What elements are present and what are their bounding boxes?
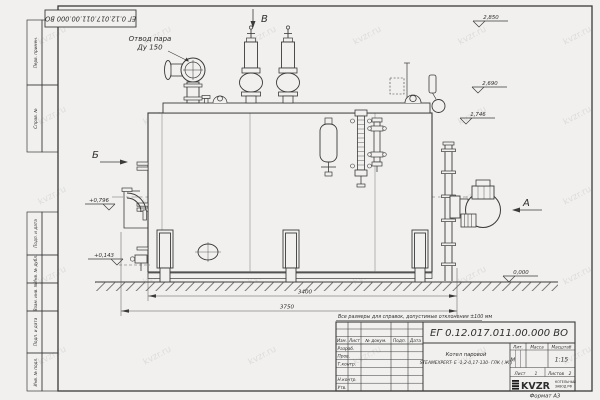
watermark-text: kvzr.ru <box>37 105 69 128</box>
siphon-loop <box>432 100 445 113</box>
steam-outlet-label-line1: Отвод пара <box>129 35 172 43</box>
dashed-reference-box <box>390 78 404 94</box>
margin-label-sprav-no: Справ. № <box>33 108 38 129</box>
row-tkontr: Т.контр. <box>338 362 357 368</box>
view-label-b: Б <box>92 150 99 161</box>
left-piping <box>122 162 148 271</box>
sheet-label: Лист <box>514 371 526 377</box>
col-izm: Изм. <box>337 338 347 344</box>
drum-fittings <box>202 96 227 104</box>
col-list: Лист <box>348 338 360 344</box>
dim-3750: 3750 <box>280 305 295 311</box>
top-rotated-stamp: ЕГ 0.12.017.011.00.000 ВО <box>45 10 136 27</box>
margin-label-podp-data-2: Подп. и дата <box>33 317 38 346</box>
burner-motor <box>472 186 494 199</box>
dimension-values: 3400 3750 <box>280 290 313 311</box>
steam-outlet-label-line2: Ду 150 <box>136 44 163 52</box>
elevation-0000: 0,000 <box>513 270 529 276</box>
watermark-text: kvzr.ru <box>37 345 69 368</box>
mass-label: Масса <box>530 344 544 349</box>
watermark-text: kvzr.ru <box>142 345 174 368</box>
row-nkontr: Н.контр. <box>338 377 357 383</box>
title-block-text: ЕГ 0.12.017.011.00.000 ВО Изм. Лист № до… <box>337 328 577 400</box>
left-margin-labels: Перв. примен. Справ. № Подп. и дата Инв.… <box>33 37 38 387</box>
watermark-text: kvzr.ru <box>37 25 69 48</box>
boiler-general-view-drawing: kvzr.rukvzr.rukvzr.rukvzr.rukvzr.rukvzr.… <box>0 0 600 400</box>
steam-outlet-callout: Отвод пара Ду 150 <box>129 35 189 62</box>
watermark-text: kvzr.ru <box>457 25 489 48</box>
scale-label: Масштаб <box>552 344 572 349</box>
logo-sub1: КОТЕЛЬНЫЙ <box>555 379 577 384</box>
drawing-sheet: kvzr.rukvzr.rukvzr.rukvzr.rukvzr.rukvzr.… <box>0 0 600 400</box>
thermowell <box>429 75 436 93</box>
elevation-0143: +0,143 <box>94 253 115 259</box>
logo-sub2: ЗАВОД РФ <box>555 385 572 389</box>
elevation-1746: 1,746 <box>470 112 486 118</box>
handwheel-icon <box>165 61 172 80</box>
product-name-line2: STEAMEXPERT- Е -1,2-0,17-130- ГЛК ( Ж ) <box>420 360 513 366</box>
dim-3400: 3400 <box>298 290 313 296</box>
watermark-text: kvzr.ru <box>247 345 279 368</box>
view-arrow-right-icon <box>120 160 128 165</box>
sheet-value: 1 <box>535 371 538 377</box>
view-label-a: А <box>522 198 530 209</box>
scale-value: 1:15 <box>555 357 569 364</box>
watermark-text: kvzr.ru <box>562 265 594 288</box>
ground <box>95 282 558 291</box>
view-label-v: В <box>261 14 268 25</box>
burner-unit <box>450 180 501 228</box>
steam-outlet-valve <box>165 58 206 103</box>
reference-note: Все размеры для справок, допустимые откл… <box>338 314 492 320</box>
sheets-label: Листов <box>547 371 565 377</box>
sheets-value: 2 <box>569 371 572 377</box>
margin-label-perv-primen: Перв. примен. <box>33 37 38 68</box>
elevation-2850: 2,850 <box>483 15 499 21</box>
row-prov: Пров. <box>338 354 351 360</box>
logo-text: KVZR <box>521 381 551 392</box>
col-data: Дата <box>409 338 421 344</box>
watermark-text: kvzr.ru <box>352 25 384 48</box>
product-name-line1: Котел паровой <box>446 352 487 358</box>
watermark-text: kvzr.ru <box>562 105 594 128</box>
view-arrow-left-icon <box>512 208 520 213</box>
burner-air-box <box>461 214 476 227</box>
col-dokum: № докум. <box>364 338 386 344</box>
drain-valve <box>135 255 147 263</box>
col-podp: Подп. <box>393 338 406 344</box>
margin-label-inv-podl: Инв. № подл. <box>33 358 38 387</box>
elevation-0796: +0,796 <box>89 198 110 204</box>
watermark-text: kvzr.ru <box>562 25 594 48</box>
watermark-text: kvzr.ru <box>352 345 384 368</box>
lit-value: М <box>510 358 515 364</box>
watermark-text: kvzr.ru <box>37 185 69 208</box>
ground-hatching <box>95 282 558 291</box>
top-stamp-doc-number: ЕГ 0.12.017.011.00.000 ВО <box>45 15 136 23</box>
margin-label-inv-dubl: Инв. № дубл. <box>33 255 38 284</box>
watermark-text: kvzr.ru <box>37 265 69 288</box>
company-logo: KVZR КОТЕЛЬНЫЙ ЗАВОД РФ <box>512 379 577 392</box>
format-note: Формат А3 <box>530 394 561 400</box>
watermark-text: kvzr.ru <box>562 185 594 208</box>
elevation-2690: 2,690 <box>482 81 498 87</box>
separator-vessel <box>320 118 337 176</box>
lit-label: Лит. <box>512 344 523 349</box>
burner-mounting-flange <box>450 196 460 218</box>
steam-drum <box>163 103 430 113</box>
row-utv: Утв. <box>338 385 347 391</box>
safety-valve <box>277 26 300 103</box>
margin-label-podp-data-1: Подп. и дата <box>33 219 38 248</box>
doc-number: ЕГ 0.12.017.011.00.000 ВО <box>430 328 568 339</box>
row-razrab: Разраб. <box>338 346 355 352</box>
margin-label-vzam-inv: Взам. инв. № <box>33 282 38 311</box>
